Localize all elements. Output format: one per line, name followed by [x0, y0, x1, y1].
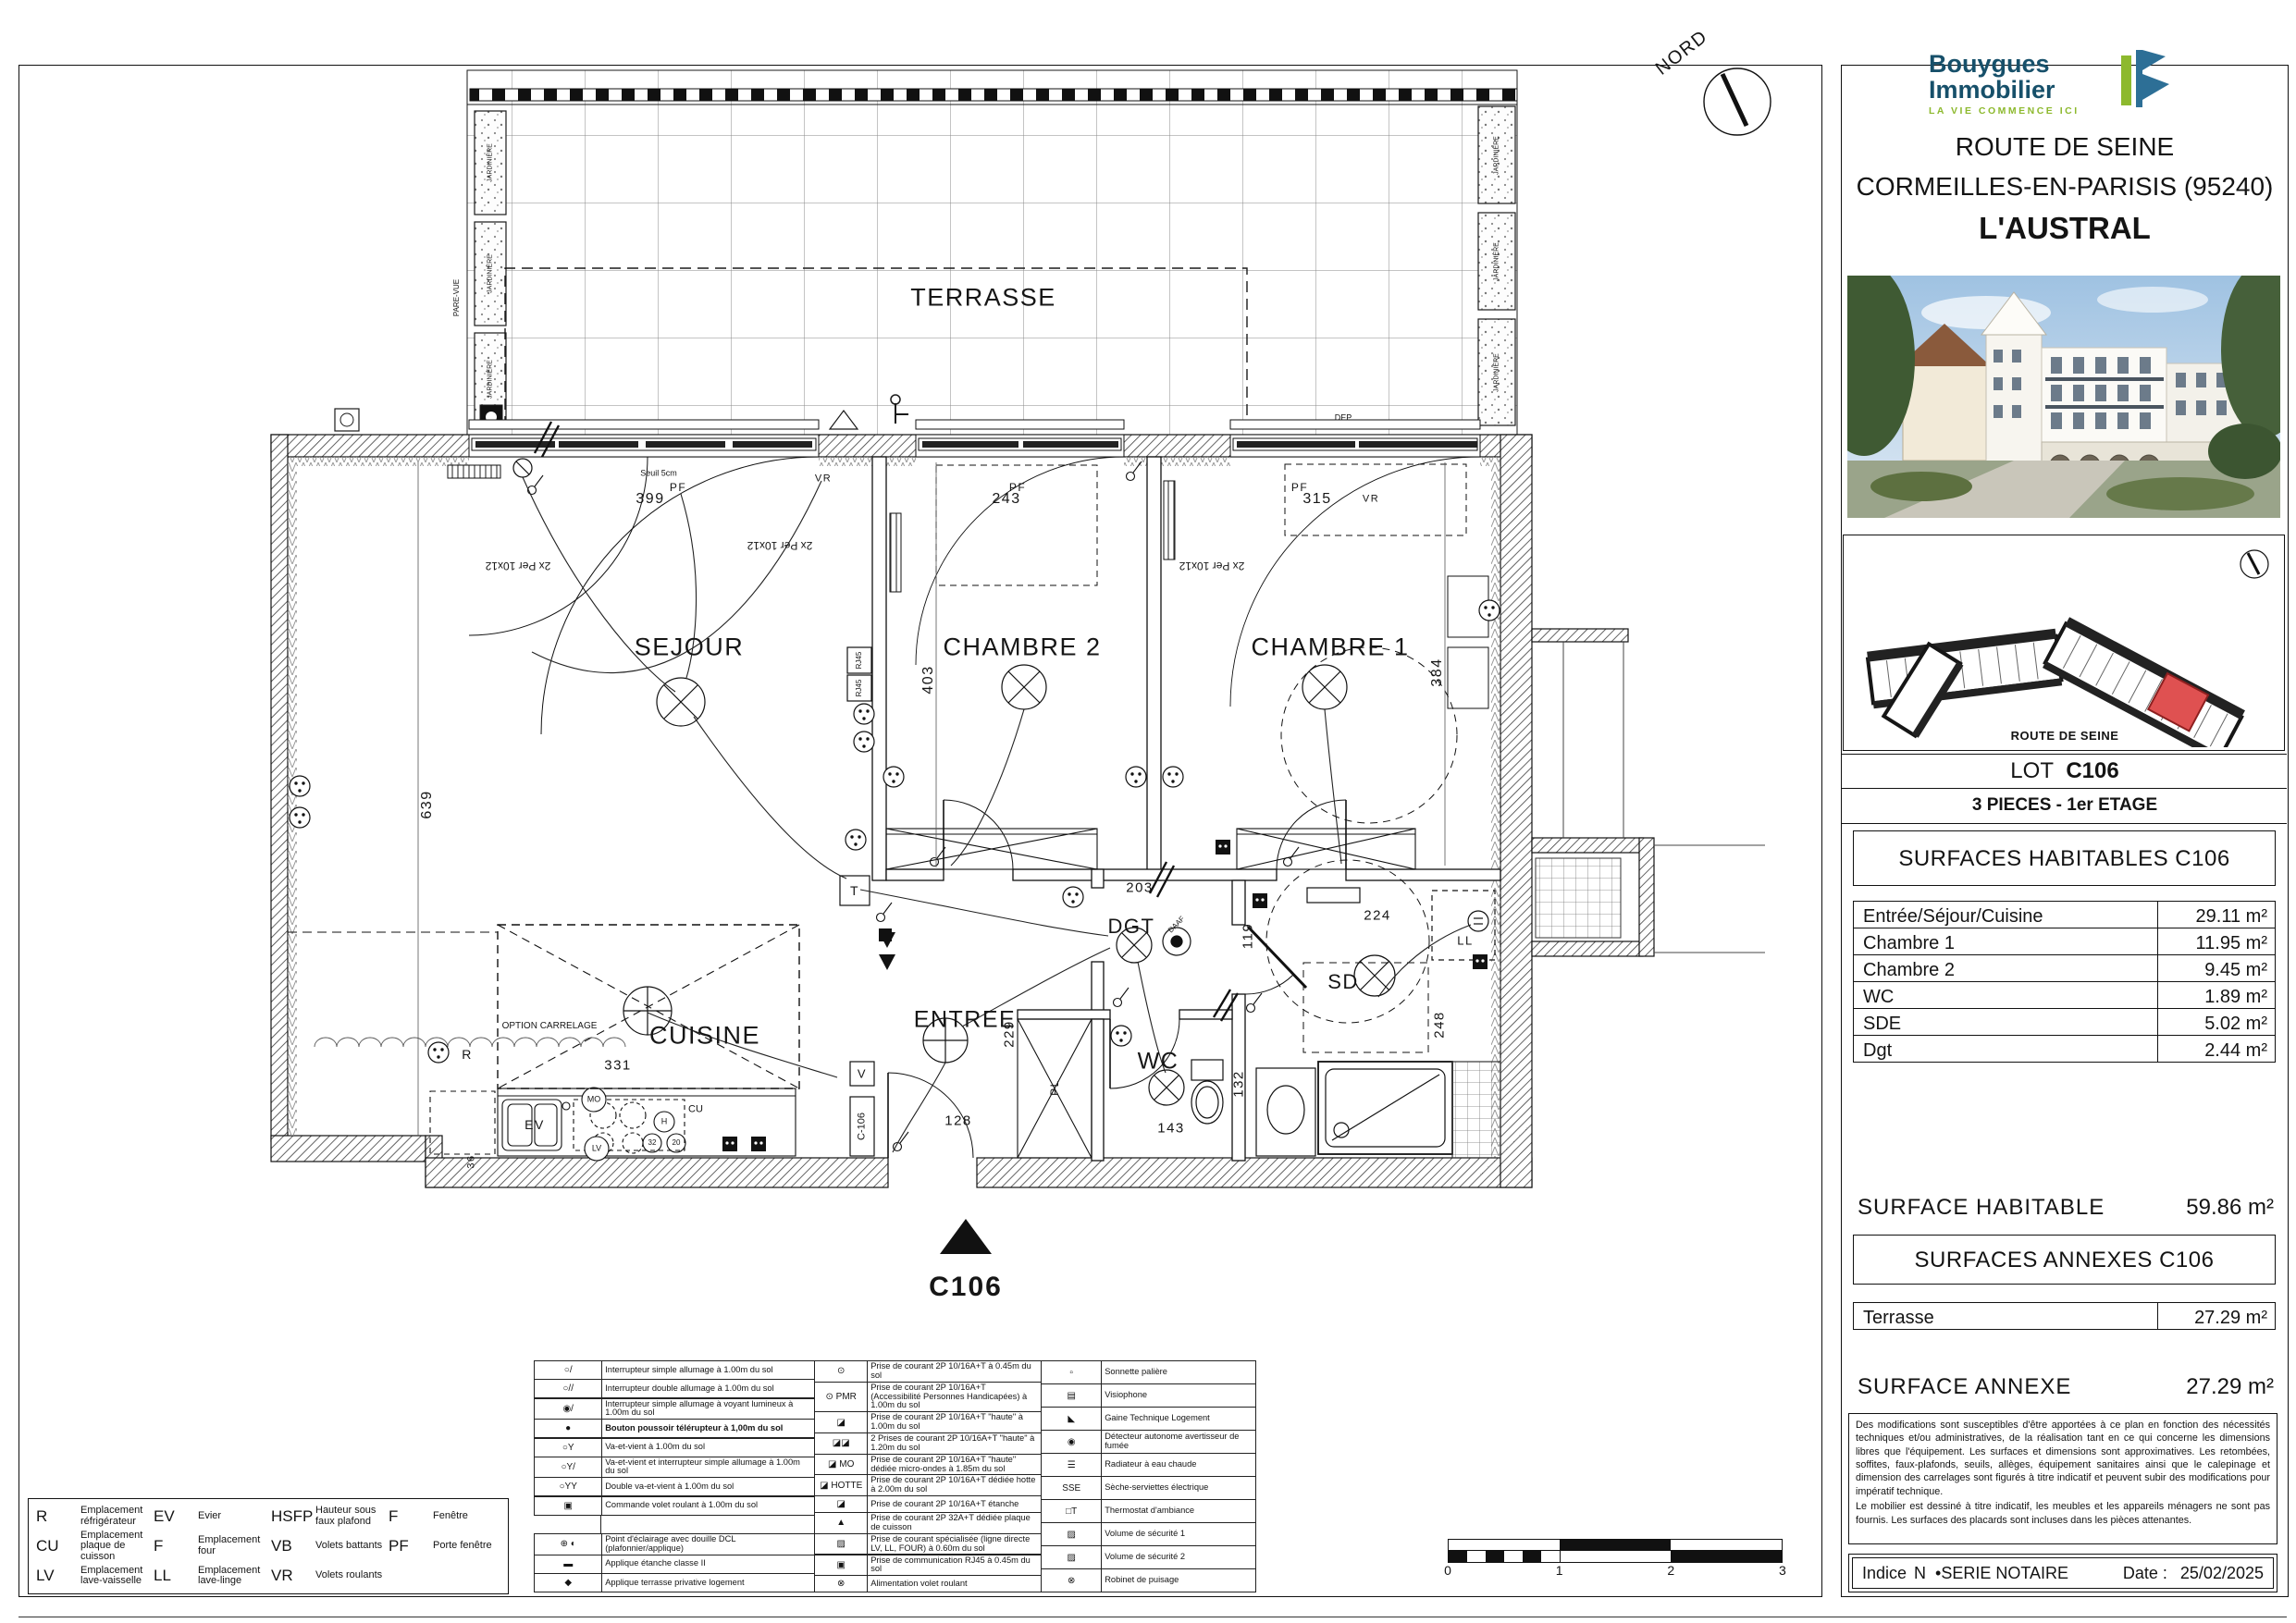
tag-h: H [661, 1118, 668, 1126]
dim-403: 403 [921, 665, 936, 694]
abbreviation-code: F [154, 1537, 191, 1555]
light-wall-sejour [513, 459, 532, 477]
legend-symbol: ○Y [535, 1439, 602, 1457]
legend-label: Prise de courant 2P 10/16A+T "haute" à 1… [868, 1412, 1041, 1432]
scale-bar-ticks: 0123 [1448, 1563, 1783, 1580]
dim-399: 399 [636, 492, 664, 507]
abbreviation-label: Hauteur sous faux plafond [315, 1506, 389, 1527]
legend-row: ⊗ Alimentation volet roulant [814, 1575, 1042, 1592]
surface-room: Entrée/Séjour/Cuisine [1854, 902, 2157, 928]
surface-total-line: SURFACE HABITABLE 59.86 m² [1858, 1195, 2274, 1221]
tag-jardiniere-4: JARDINIÈRE [1494, 136, 1500, 175]
surface-value: 11.95 m² [2157, 928, 2275, 954]
legend-row: ▬ Applique étanche classe II [534, 1555, 815, 1574]
legend-row: ◆ Applique terrasse privative logement [534, 1573, 815, 1592]
abbreviation-label: Porte fenêtre [433, 1541, 492, 1552]
legend-symbol: ▣ [535, 1497, 602, 1515]
surface-row: WC 1.89 m² [1854, 982, 2275, 1009]
legend-symbol: ◆ [535, 1574, 602, 1592]
legend-row: ▨ Volume de sécurité 1 [1041, 1522, 1256, 1546]
abbreviation-item: HSFP Hauteur sous faux plafond [271, 1503, 389, 1531]
legend-label: Alimentation volet roulant [868, 1576, 1041, 1592]
legend-label: Thermostat d'ambiance [1102, 1500, 1255, 1522]
abbreviation-label: Volets roulants [315, 1570, 382, 1581]
surfaces-table: Entrée/Séjour/Cuisine 29.11 m² Chambre 1… [1853, 901, 2276, 1063]
abbreviation-item: F Fenêtre [389, 1503, 506, 1531]
tag-32: 32 [648, 1139, 657, 1147]
tag-dep: DEP [1335, 414, 1352, 423]
tag-option-carrelage: OPTION CARRELAGE [502, 1022, 598, 1031]
room-label-sde: SD [1327, 972, 1359, 992]
abbreviation-label: Emplacement lave-linge [198, 1566, 271, 1587]
surface-value: 29.11 m² [2157, 902, 2275, 928]
tag-pare-vue: PARE-VUE [453, 279, 461, 316]
surface-total-value: 59.86 m² [2186, 1195, 2274, 1221]
legend-symbol: ◉/ [535, 1399, 602, 1420]
abbreviation-item: PF Porte fenêtre [389, 1531, 506, 1563]
legend-label: Point d'éclairage avec douille DCL (plaf… [602, 1534, 814, 1555]
tag-pf-sejour: PF [670, 482, 686, 493]
legend-symbol: ▤ [1042, 1384, 1102, 1407]
rule [1841, 788, 2287, 789]
legend-row: ○Y/ Va-et-vient et interrupteur simple a… [534, 1457, 815, 1479]
doors [469, 422, 1480, 1158]
scale-tick: 0 [1444, 1563, 1451, 1578]
room-label-cuisine: CUISINE [649, 1024, 760, 1049]
legend-row: ◪◪ 2 Prises de courant 2P 10/16A+T "haut… [814, 1432, 1042, 1455]
room-label-sejour: SEJOUR [635, 635, 745, 660]
date-label: Date : [2123, 1564, 2167, 1583]
abbreviation-item: R Emplacement réfrigérateur [36, 1503, 154, 1531]
dim-248: 248 [1433, 1011, 1447, 1039]
legend-symbol: ◪ [815, 1412, 868, 1432]
legend-label: Prise de courant 2P 32A+T dédiée plaque … [868, 1513, 1041, 1533]
legend-symbol: ▲ [815, 1513, 868, 1533]
legend-row: ⊙ PMR Prise de courant 2P 10/16A+T (Acce… [814, 1382, 1042, 1412]
indice-label: Indice [1862, 1564, 1907, 1583]
abbreviation-item: CU Emplacement plaque de cuisson [36, 1531, 154, 1563]
logo-line2: Immobilier [1929, 78, 2055, 104]
legend-symbol: ◣ [1042, 1408, 1102, 1430]
legend-label: Interrupteur simple allumage à voyant lu… [602, 1399, 814, 1420]
legend-row: ⊕ ◐ Point d'éclairage avec douille DCL (… [534, 1533, 815, 1555]
tag-rj45-b: RJ45 [856, 680, 863, 697]
room-label-wc: WC [1138, 1051, 1179, 1074]
legend-row: ○/ Interrupteur simple allumage à 1.00m … [534, 1360, 815, 1380]
exterior-walls [271, 435, 1654, 1187]
legend-row: □T Thermostat d'ambiance [1041, 1499, 1256, 1523]
legend-symbol: ○/ [535, 1361, 602, 1379]
legend-symbol: ☰ [1042, 1454, 1102, 1476]
abbreviation-label: Volets battants [315, 1541, 382, 1552]
tag-vr-ch1: VR [1363, 495, 1379, 505]
legend-label: Prise de courant 2P 10/16A+T à 0.45m du … [868, 1361, 1041, 1382]
dim-315: 315 [1302, 492, 1331, 507]
keyplan [1845, 536, 2281, 747]
surface-value: 5.02 m² [2157, 1009, 2275, 1035]
abbreviation-code: LL [154, 1567, 191, 1585]
disclaimer-box: Des modifications sont susceptibles d'êt… [1848, 1413, 2277, 1544]
legend-row: ⊙ Prise de courant 2P 10/16A+T à 0.45m d… [814, 1360, 1042, 1383]
abbreviation-code: F [389, 1507, 426, 1526]
legend-col-2: ⊙ Prise de courant 2P 10/16A+T à 0.45m d… [815, 1361, 1042, 1592]
surface-row: Dgt 2.44 m² [1854, 1036, 2275, 1062]
floorplan-sheet: TERRASSE SEJOUR CHAMBRE 2 CHAMBRE 1 CUIS… [0, 0, 2296, 1623]
dim-639: 639 [420, 790, 435, 818]
wires [523, 477, 1471, 1152]
dim-229: 229 [1003, 1020, 1017, 1048]
tag-jardiniere-6: JARDINIÈRE [1494, 353, 1500, 392]
socket-dots [294, 606, 1494, 1058]
disclaimer-p1: Des modifications sont susceptibles d'êt… [1856, 1419, 2270, 1498]
abbreviation-code: LV [36, 1567, 73, 1585]
legend-row: ▣ Prise de communication RJ45 à 0.45m du… [814, 1555, 1042, 1577]
surface-value: 9.45 m² [2157, 955, 2275, 981]
legend-symbol: ● [535, 1420, 602, 1437]
surface-room: WC [1854, 982, 2157, 1008]
project-line1: ROUTE DE SEINE [1843, 132, 2287, 162]
tag-pf-ch2: PF [1009, 482, 1026, 493]
tag-ev: EV [525, 1118, 545, 1131]
legend-symbol: ○// [535, 1380, 602, 1397]
abbreviation-item: VR Volets roulants [271, 1562, 389, 1590]
legend-symbol: ⊙ PMR [815, 1383, 868, 1411]
tag-vr-sejour: VR [815, 474, 832, 485]
north-compass [1704, 68, 1771, 135]
legend-symbol: ◪ HOTTE [815, 1475, 868, 1495]
annexe-room: Terrasse [1854, 1303, 2157, 1329]
legend-label: Prise de communication RJ45 à 0.45m du s… [868, 1555, 1041, 1576]
light-sejour [657, 678, 705, 726]
annexes-title: SURFACES ANNEXES C106 [1854, 1248, 2275, 1273]
surface-row: Entrée/Séjour/Cuisine 29.11 m² [1854, 902, 2275, 928]
tag-jardiniere-3: JARDINIÈRE [488, 360, 494, 399]
tag-jardiniere-2: JARDINIÈRE [488, 254, 494, 293]
tag-rj45-a: RJ45 [856, 652, 863, 670]
terrace [335, 70, 1517, 435]
dim-119: 119 [1241, 923, 1255, 949]
rule [1841, 823, 2287, 824]
legend-row [534, 1515, 815, 1534]
serie-label: •SERIE NOTAIRE [1935, 1564, 2068, 1583]
surfaces-title: SURFACES HABITABLES C106 [1854, 846, 2275, 872]
tag-per-3: 2x Per 10x12 [1179, 560, 1245, 572]
surface-room: Chambre 1 [1854, 928, 2157, 954]
abbreviation-label: Emplacement plaque de cuisson [80, 1531, 154, 1563]
tag-pf-ch1: PF [1291, 482, 1308, 493]
surface-room: Dgt [1854, 1036, 2157, 1062]
dim-lines [418, 462, 1445, 1136]
legend-label: Détecteur autonome avertisseur de fumée [1102, 1431, 1255, 1453]
legend-label: Prise de courant 2P 10/16A+T "haute" déd… [868, 1455, 1041, 1475]
legend-label: 2 Prises de courant 2P 10/16A+T "haute" … [868, 1433, 1041, 1454]
dim-132: 132 [1232, 1070, 1246, 1098]
abbreviation-code: EV [154, 1507, 191, 1526]
dim-384: 384 [1430, 658, 1445, 686]
logo-tagline: LA VIE COMMENCE ICI [1929, 105, 2080, 117]
dim-36: 36 [467, 1154, 477, 1168]
legend-label: Applique étanche classe II [602, 1555, 814, 1573]
legend-label: Visiophone [1102, 1384, 1255, 1407]
abbreviation-code: CU [36, 1537, 73, 1555]
legend-label: Sonnette palière [1102, 1361, 1255, 1383]
legend-label: Prise de courant 2P 10/16A+T (Accessibil… [868, 1383, 1041, 1411]
abbreviations-box: R Emplacement réfrigérateur CU Emplaceme… [28, 1498, 509, 1594]
lot-number: C106 [2066, 758, 2118, 783]
room-label-chambre1: CHAMBRE 1 [1251, 635, 1409, 660]
legend-label: Radiateur à eau chaude [1102, 1454, 1255, 1476]
legend-row: ◣ Gaine Technique Logement [1041, 1407, 1256, 1431]
legend-symbol: ▨ [1042, 1546, 1102, 1568]
legend-row: ▣ Commande volet roulant à 1.00m du sol [534, 1496, 815, 1516]
scale-tick: 2 [1667, 1563, 1674, 1578]
keyplan-caption: ROUTE DE SEINE [1843, 729, 2287, 743]
rule [1841, 754, 2287, 755]
legend-symbol: ▣ [815, 1555, 868, 1576]
legend-symbol: ⊗ [815, 1576, 868, 1592]
legend-symbol: □T [1042, 1500, 1102, 1522]
room-label-dgt: DGT [1108, 916, 1155, 937]
legend-table: ○/ Interrupteur simple allumage à 1.00m … [535, 1361, 1256, 1592]
lot-label: LOT [2010, 758, 2054, 783]
legend-row: SSE Sèche-serviettes électrique [1041, 1476, 1256, 1500]
logo-line1: Bouygues [1929, 52, 2055, 78]
tag-v: V [858, 1068, 867, 1080]
revision-box: Indice N •SERIE NOTAIRE Date : 25/02/202… [1848, 1554, 2277, 1592]
legend-row: ◪ Prise de courant 2P 10/16A+T "haute" à… [814, 1411, 1042, 1433]
legend-row: ◉/ Interrupteur simple allumage à voyant… [534, 1398, 815, 1420]
legend-row: ○// Interrupteur double allumage à 1.00m… [534, 1379, 815, 1398]
annexe-total-line: SURFACE ANNEXE 27.29 m² [1858, 1374, 2274, 1400]
legend-col-1: ○/ Interrupteur simple allumage à 1.00m … [535, 1361, 815, 1592]
surface-total-label: SURFACE HABITABLE [1858, 1195, 2105, 1221]
abbreviation-code: R [36, 1507, 73, 1526]
project-name: L'AUSTRAL [1843, 211, 2287, 246]
unit-marker-triangle [940, 1219, 992, 1254]
tag-lv: LV [592, 1145, 601, 1153]
date-value: 25/02/2025 [2180, 1564, 2264, 1583]
surface-row: SDE 5.02 m² [1854, 1009, 2275, 1036]
legend-symbol: SSE [1042, 1477, 1102, 1499]
dim-331: 331 [604, 1059, 632, 1073]
sockets [290, 600, 1500, 1063]
legend-label: Prise de courant 2P 10/16A+T étanche [868, 1496, 1041, 1512]
room-label-chambre2: CHAMBRE 2 [943, 635, 1101, 660]
light-chambre2 [1002, 665, 1046, 709]
abbreviation-label: Emplacement lave-vaisselle [80, 1566, 154, 1587]
abbreviation-item: LL Emplacement lave-linge [154, 1562, 271, 1590]
tag-mo: MO [587, 1096, 601, 1104]
lot-type: 3 PIECES - 1er ETAGE [1843, 795, 2287, 816]
legend-symbol: ○Y/ [535, 1457, 602, 1478]
tag-r: R [462, 1048, 473, 1061]
legend-symbol: ◪◪ [815, 1433, 868, 1454]
legend-symbol [534, 1516, 601, 1533]
legend-symbol: ▬ [535, 1555, 602, 1573]
legend-label: Sèche-serviettes électrique [1102, 1477, 1255, 1499]
abbreviation-code: VB [271, 1537, 308, 1555]
tag-20: 20 [673, 1139, 681, 1147]
abbreviation-item: F Emplacement four [154, 1531, 271, 1563]
project-line2: CORMEILLES-EN-PARISIS (95240) [1843, 172, 2287, 202]
legend-label: Interrupteur simple allumage à 1.00m du … [602, 1361, 814, 1379]
indice-value: N [1914, 1564, 1926, 1583]
logo: Bouygues Immobilier LA VIE COMMENCE ICI [1929, 48, 2206, 122]
tag-per-1: 2x Per 10x12 [486, 560, 551, 572]
legend-symbol: ⊗ [1042, 1569, 1102, 1592]
keyplan-building [1867, 617, 2245, 747]
dim-128: 128 [944, 1114, 972, 1128]
legend-row: ◉ Détecteur autonome avertisseur de fumé… [1041, 1430, 1256, 1454]
legend-label: Interrupteur double allumage à 1.00m du … [602, 1380, 814, 1397]
annexe-value: 27.29 m² [2157, 1303, 2275, 1329]
legend-row: ◪ HOTTE Prise de courant 2P 10/16A+T déd… [814, 1474, 1042, 1496]
surface-room: Chambre 2 [1854, 955, 2157, 981]
legend-label: Prise de courant 2P 10/16A+T dédiée hott… [868, 1475, 1041, 1495]
unit-marker-label: C106 [929, 1273, 1003, 1301]
abbreviation-label: Emplacement four [198, 1535, 271, 1556]
surfaces-title-box: SURFACES HABITABLES C106 [1853, 830, 2276, 886]
dim-203: 203 [1126, 881, 1154, 895]
legend-symbol: ▫ [1042, 1361, 1102, 1383]
room-label-terrasse: TERRASSE [910, 286, 1056, 311]
abbreviation-code: VR [271, 1567, 308, 1585]
windows [469, 420, 1480, 457]
legend-symbol: ◪ [815, 1496, 868, 1512]
legend-symbol: ○YY [535, 1478, 602, 1495]
light-sde [1354, 955, 1395, 996]
tag-jardiniere-1: JARDINIÈRE [488, 143, 494, 182]
tag-t: T [850, 884, 859, 897]
legend-symbol: ⊙ [815, 1361, 868, 1382]
scale-tick: 3 [1779, 1563, 1786, 1578]
abbreviation-label: Evier [198, 1511, 221, 1522]
light-wc [1149, 1070, 1184, 1105]
legend-symbol: ◪ MO [815, 1455, 868, 1475]
legend-label: Va-et-vient et interrupteur simple allum… [602, 1457, 814, 1478]
surface-value: 1.89 m² [2157, 982, 2275, 1008]
surface-room: SDE [1854, 1009, 2157, 1035]
surface-row: Chambre 2 9.45 m² [1854, 955, 2275, 982]
annexes-title-box: SURFACES ANNEXES C106 [1853, 1235, 2276, 1285]
legend-label: Volume de sécurité 1 [1102, 1523, 1255, 1545]
legend-symbol: ⊕ ◐ [535, 1534, 602, 1555]
legend-label: Va-et-vient à 1.00m du sol [602, 1439, 814, 1457]
legend-row: ▲ Prise de courant 2P 32A+T dédiée plaqu… [814, 1512, 1042, 1534]
legend-row: ○Y Va-et-vient à 1.00m du sol [534, 1438, 815, 1457]
legend-col-3: ▫ Sonnette palière ▤ Visiophone ◣ Gaine … [1042, 1361, 1256, 1592]
building-photo [1847, 276, 2280, 518]
legend-label: Applique terrasse privative logement [602, 1574, 814, 1592]
tag-door-c106: C-106 [858, 1113, 868, 1140]
annexe-total-value: 27.29 m² [2186, 1374, 2274, 1400]
abbreviation-code: PF [389, 1537, 426, 1555]
surface-value: 2.44 m² [2157, 1036, 2275, 1062]
annexes-table: Terrasse 27.29 m² [1853, 1302, 2276, 1330]
keyplan-compass [2240, 550, 2268, 578]
legend-symbol: ▨ [815, 1534, 868, 1555]
abbreviation-item: LV Emplacement lave-vaisselle [36, 1562, 154, 1590]
legend-row: ▨ Prise de courant spécialisée (ligne di… [814, 1533, 1042, 1555]
tag-pl: PL [1049, 1079, 1060, 1096]
surface-row: Chambre 1 11.95 m² [1854, 928, 2275, 955]
annexe-row: Terrasse 27.29 m² [1854, 1303, 2275, 1329]
legend-row: ⊗ Robinet de puisage [1041, 1568, 1256, 1592]
scale-tick: 1 [1556, 1563, 1563, 1578]
legend-row: ◪ Prise de courant 2P 10/16A+T étanche [814, 1495, 1042, 1513]
legend-label: Commande volet roulant à 1.00m du sol [602, 1497, 814, 1515]
dim-143: 143 [1157, 1122, 1185, 1136]
abbreviation-label: Emplacement réfrigérateur [80, 1506, 154, 1527]
legend-row: ▨ Volume de sécurité 2 [1041, 1545, 1256, 1569]
scale-bar: 0123 [1448, 1539, 1783, 1580]
legend-row: ▤ Visiophone [1041, 1383, 1256, 1408]
legend-label: Double va-et-vient à 1.00m du sol [602, 1478, 814, 1495]
abbreviation-code: HSFP [271, 1507, 308, 1526]
legend-label: Robinet de puisage [1102, 1569, 1255, 1592]
dim-243: 243 [992, 492, 1020, 507]
dim-224: 224 [1364, 909, 1391, 923]
legend-row: ◪ MO Prise de courant 2P 10/16A+T "haute… [814, 1454, 1042, 1476]
legend-label: Volume de sécurité 2 [1102, 1546, 1255, 1568]
light-chambre1 [1302, 665, 1347, 709]
legend-row: ○YY Double va-et-vient à 1.00m du sol [534, 1477, 815, 1496]
tag-cu: CU [688, 1105, 703, 1115]
tag-seuil: Seuil 5cm [640, 470, 677, 478]
legend-symbol: ◉ [1042, 1431, 1102, 1453]
abbreviation-item: EV Evier [154, 1503, 271, 1531]
abbreviation-item: VB Volets battants [271, 1531, 389, 1563]
tag-ll: LL [1457, 935, 1473, 947]
lot-line: LOT C106 [1843, 758, 2287, 784]
legend-symbol: ▨ [1042, 1523, 1102, 1545]
annexe-total-label: SURFACE ANNEXE [1858, 1374, 2071, 1400]
abbreviation-label: Fenêtre [433, 1511, 468, 1522]
legend-row: ▫ Sonnette palière [1041, 1360, 1256, 1384]
disclaimer-p2: Le mobilier est dessiné à titre indicati… [1856, 1500, 2270, 1527]
tag-per-2: 2x Per 10x12 [747, 540, 813, 551]
legend-label: Gaine Technique Logement [1102, 1408, 1255, 1430]
logo-mark [2121, 48, 2169, 113]
legend-label: Bouton poussoir télérupteur à 1,00m du s… [602, 1420, 814, 1437]
legend-row: ☰ Radiateur à eau chaude [1041, 1453, 1256, 1477]
legend-label: Prise de courant spécialisée (ligne dire… [868, 1534, 1041, 1555]
tag-jardiniere-5: JARDINIÈRE [1494, 242, 1500, 281]
legend-label [601, 1516, 815, 1533]
legend-row: ● Bouton poussoir télérupteur à 1,00m du… [534, 1419, 815, 1438]
